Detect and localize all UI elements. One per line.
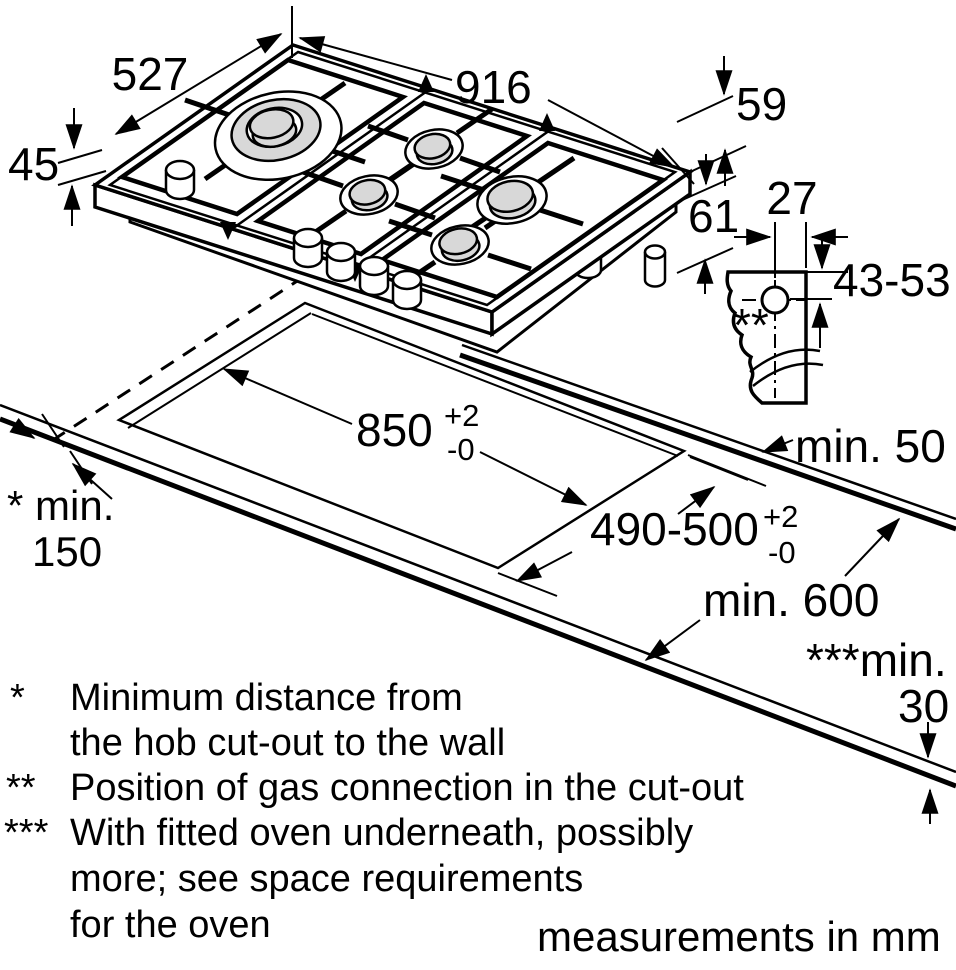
dim-label-min-front: min. 600 — [703, 574, 879, 626]
footnote-line: for the oven — [70, 904, 271, 946]
dim-hob-height-above: 45 — [8, 108, 106, 226]
footnote-line: With fitted oven underneath, possibly — [70, 812, 693, 854]
footnote-line: Position of gas connection in the cut-ou… — [70, 767, 744, 809]
grate-post-back-left — [418, 74, 434, 92]
gas-marker-label: ** — [733, 299, 769, 351]
dim-arrow-up — [845, 519, 899, 576]
dim-arrow-down — [517, 552, 572, 581]
dim-arrow-down — [646, 620, 700, 660]
dim-label-min-thickness: ***min. — [806, 634, 947, 686]
dim-label-gas-offset-x: 27 — [766, 172, 817, 224]
technical-diagram: ** 527 916 45 59 61 — [0, 0, 956, 970]
footnote-line: the hob cut-out to the wall — [70, 722, 505, 764]
dim-label-min-thickness-value: 30 — [898, 680, 949, 732]
dim-label-cutout-width: 490-500 — [590, 503, 759, 555]
knob — [327, 243, 355, 281]
dim-label-height-above: 45 — [8, 138, 59, 190]
dim-label-cutout-width-minus: -0 — [768, 535, 796, 570]
knob — [360, 257, 388, 295]
dim-label-cutout-length-minus: -0 — [447, 432, 475, 467]
dim-label-min-wall: * min. — [7, 482, 114, 529]
dim-tick — [690, 146, 746, 172]
footnote-marker-3: *** — [4, 812, 49, 854]
unit-note: measurements in mm — [537, 913, 941, 960]
dim-tick — [42, 414, 64, 447]
dim-min-back: min. 50 — [763, 420, 946, 472]
footnotes: * ** *** Minimum distance from the hob c… — [4, 677, 941, 960]
dim-label-cutout-width-plus: +2 — [763, 499, 798, 534]
dim-min-wall: * min. 150 — [6, 414, 114, 575]
dim-label-height-mid: 59 — [736, 78, 787, 130]
knob — [393, 271, 421, 309]
knob — [166, 161, 194, 199]
grate-post-back-right — [539, 113, 555, 131]
dim-label-min-back: min. 50 — [795, 420, 946, 472]
hob-foot-right — [645, 246, 665, 287]
dim-tick — [677, 96, 733, 122]
dim-gas-offset-x: 27 — [734, 172, 848, 278]
footnote-line: Minimum distance from — [70, 677, 463, 719]
diagram-page: ** 527 916 45 59 61 — [0, 0, 956, 970]
dim-label-gas-offset-y: 43-53 — [833, 254, 951, 306]
dim-label-height-total: 61 — [688, 190, 739, 242]
footnote-marker-2: ** — [6, 767, 36, 809]
dim-label-min-wall-value: 150 — [32, 528, 102, 575]
footnote-marker-1: * — [10, 677, 25, 719]
footnote-line: more; see space requirements — [70, 858, 583, 900]
dim-tick — [690, 457, 748, 480]
dim-hob-height-mid: 59 — [677, 56, 787, 186]
dim-label-cutout-length-plus: +2 — [444, 398, 479, 433]
dim-label-hob-width: 527 — [112, 48, 189, 100]
dim-min-thickness: ***min. 30 — [806, 634, 949, 824]
dim-label-hob-length: 916 — [455, 61, 532, 113]
knob — [294, 229, 322, 267]
dim-tick — [58, 150, 102, 163]
dim-arrow — [763, 440, 793, 452]
dim-label-cutout-length: 850 — [356, 404, 433, 456]
dim-gas-offset-y: 43-53 — [790, 238, 951, 348]
